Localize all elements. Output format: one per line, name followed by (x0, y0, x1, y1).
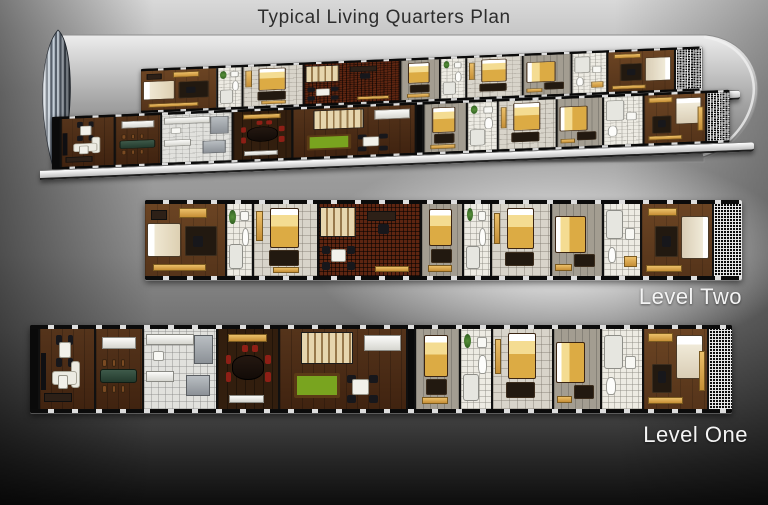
furniture-cab (624, 256, 637, 268)
furniture-sink (484, 106, 493, 113)
room-end-cap (705, 92, 729, 141)
furniture-cntr (244, 150, 278, 156)
furniture-chr (241, 127, 246, 133)
furniture-tub (470, 129, 485, 146)
room-master-bedroom (642, 329, 707, 409)
furniture-rug (574, 385, 593, 399)
furniture-sink (454, 62, 462, 68)
furniture-rug (479, 83, 506, 92)
room-bedroom-2 (252, 204, 317, 276)
room-bathroom-1 (225, 204, 252, 276)
furniture-bedgl (555, 216, 586, 253)
furniture-tub (229, 244, 243, 268)
room-master-bedroom (643, 93, 706, 144)
furniture-chr (241, 138, 246, 144)
room-lounge (38, 329, 94, 409)
furniture-cab (611, 85, 645, 90)
furniture-chr (226, 355, 231, 365)
furniture-chd (347, 246, 355, 255)
furniture-pool (294, 373, 341, 398)
furniture-cab (500, 107, 506, 128)
furniture-cab (699, 351, 705, 391)
room-bedroom-3 (420, 204, 462, 276)
furniture-tub (466, 246, 480, 269)
furniture-desk (44, 393, 72, 402)
room-bathroom-1 (466, 102, 497, 151)
room-bathroom-2 (439, 58, 465, 99)
furniture-cntr (164, 139, 190, 147)
furniture-rug (431, 249, 452, 263)
furniture-chd (378, 224, 389, 234)
furniture-rug (434, 133, 455, 143)
furniture-chd (369, 395, 378, 403)
furniture-bedgl (526, 61, 555, 83)
furniture-chd (360, 73, 370, 79)
furniture-appl (211, 116, 229, 134)
furniture-appl (194, 335, 213, 364)
furniture-cab (560, 139, 575, 144)
furniture-sink (477, 337, 487, 348)
furniture-cab (273, 267, 299, 273)
furniture-rug (511, 131, 539, 142)
furniture-plant (220, 71, 226, 79)
furniture-sink (240, 211, 249, 221)
furniture-chbr (140, 134, 144, 139)
furniture-bedwl (147, 223, 181, 258)
furniture-cab (430, 144, 455, 149)
furniture-toil (608, 247, 617, 263)
room-bedroom-1 (141, 68, 216, 111)
furniture-sink (592, 66, 601, 73)
furniture-toil (576, 77, 584, 86)
furniture-chr (257, 121, 263, 126)
room-bedroom-3 (556, 97, 602, 147)
room-corridor-stairs (317, 204, 420, 276)
furniture-rug (544, 82, 564, 90)
room-master-bedroom (606, 50, 674, 92)
furniture-rug (574, 254, 595, 267)
furniture-chd (307, 87, 315, 92)
room-dining-bar (114, 115, 160, 165)
furniture-plant (464, 334, 471, 348)
furniture-bedgl (556, 342, 585, 384)
furniture-chd (331, 95, 339, 100)
room-bedroom-5 (550, 204, 602, 276)
room-end-cap (674, 49, 702, 90)
furniture-cab (422, 397, 448, 404)
furniture-chd (380, 134, 389, 139)
furniture-chd (347, 262, 355, 271)
furniture-chr (266, 120, 272, 125)
furniture-desk (151, 210, 167, 220)
floorplan-one (30, 325, 732, 413)
furniture-chd (658, 120, 666, 128)
furniture-dtbl (100, 369, 138, 383)
furniture-cab (494, 213, 500, 245)
room-bedroom-1 (145, 204, 225, 276)
furniture-chd (307, 96, 315, 101)
room-end-cap (707, 329, 732, 409)
furniture-cntr (121, 120, 154, 129)
furniture-cab (646, 265, 682, 271)
furniture-tub (606, 100, 624, 121)
furniture-toil (485, 117, 493, 129)
furniture-chr (265, 372, 270, 382)
furniture-cab (245, 71, 252, 88)
furniture-rug (426, 379, 448, 395)
room-bedroom-2 (491, 329, 552, 409)
room-bathroom-3 (571, 53, 607, 94)
furniture-tub (606, 210, 623, 239)
furniture-chd (193, 236, 203, 248)
furniture-chd (322, 262, 330, 271)
furniture-bedgt (408, 62, 430, 83)
room-mid-wall (406, 329, 414, 409)
room-formal-dining (216, 329, 278, 409)
room-edge-wall (52, 119, 60, 167)
furniture-chd (56, 358, 61, 368)
furniture-dtblo (232, 355, 263, 381)
furniture-cab (179, 208, 208, 217)
furniture-chbr (131, 134, 135, 139)
furniture-chr (226, 372, 231, 382)
furniture-plant (443, 61, 449, 68)
furniture-sink (478, 211, 487, 221)
furniture-chr (265, 355, 270, 365)
furniture-sink (153, 351, 165, 361)
furniture-cab (648, 97, 672, 103)
furniture-toil (479, 228, 487, 245)
furniture-tblw (352, 379, 370, 395)
furniture-cab (375, 266, 409, 272)
furniture-tblw (331, 249, 346, 262)
furniture-cab (173, 71, 200, 77)
living-quarters-plan-page: { "title": "Typical Living Quarters Plan… (0, 0, 768, 505)
furniture-tv (63, 133, 68, 155)
furniture-tblw (59, 342, 71, 358)
furniture-desk (367, 211, 395, 220)
furniture-stair (306, 65, 340, 83)
furniture-sink (230, 71, 238, 77)
furniture-cntr (229, 395, 264, 403)
room-bedroom-1 (423, 103, 466, 153)
furniture-cab (613, 53, 641, 59)
furniture-rug (505, 252, 534, 266)
furniture-bedgt (259, 67, 286, 90)
furniture-rug (258, 91, 286, 101)
furniture-chbr (131, 150, 135, 155)
furniture-cab (228, 334, 268, 342)
furniture-chd (358, 146, 367, 151)
furniture-chbr (140, 149, 144, 154)
furniture-chbr (122, 135, 126, 140)
furniture-cab (698, 107, 703, 131)
furniture-chd (186, 86, 195, 93)
furniture-tub (574, 56, 590, 72)
furniture-cab (256, 211, 263, 241)
room-corridor-stairs (303, 61, 400, 104)
room-bedroom-2 (497, 99, 556, 149)
furniture-sink (626, 112, 637, 120)
room-bathroom-2 (602, 96, 643, 146)
furniture-cab (407, 93, 430, 97)
furniture-toil (455, 72, 462, 82)
furniture-chd (322, 246, 330, 255)
furniture-plant (467, 208, 473, 221)
outer-wall-windows-top (145, 200, 742, 204)
furniture-bedgt (270, 208, 299, 248)
level-one-strip (30, 325, 732, 413)
furniture-cab (648, 397, 683, 404)
furniture-bedgt (429, 209, 452, 246)
furniture-cab (261, 100, 286, 104)
furniture-cntr (164, 116, 210, 125)
floorplan-two (145, 200, 742, 280)
room-mid-wall (415, 105, 423, 153)
furniture-toil (232, 81, 239, 91)
furniture-cab (648, 333, 673, 342)
room-bathroom-2 (600, 329, 642, 409)
furniture-tub (463, 374, 479, 401)
furniture-appl (202, 140, 226, 153)
room-bedroom-4 (490, 204, 550, 276)
outer-wall-windows-bottom (30, 409, 732, 413)
furniture-bedgt (424, 335, 448, 377)
furniture-cab (153, 264, 206, 270)
room-bedroom-4 (465, 56, 521, 98)
furniture-cab (555, 264, 572, 270)
furniture-rug (506, 382, 536, 398)
furniture-cntr (102, 337, 136, 349)
furniture-rug (410, 84, 430, 93)
furniture-bedgt (432, 107, 455, 133)
furniture-tv (41, 353, 46, 390)
furniture-chbr (122, 150, 126, 155)
room-recreation (278, 329, 406, 409)
room-dining-bar (94, 329, 142, 409)
furniture-stair (314, 109, 364, 130)
furniture-cab (648, 135, 682, 141)
furniture-dtblo (247, 126, 277, 143)
furniture-chbr (121, 385, 125, 393)
furniture-cab (591, 81, 603, 88)
furniture-stair (320, 207, 356, 237)
furniture-chd (369, 375, 378, 383)
furniture-sink (625, 356, 636, 369)
furniture-sink (170, 128, 181, 134)
furniture-cab (243, 113, 281, 119)
furniture-cab (357, 95, 389, 100)
room-bedroom-2 (242, 65, 303, 107)
furniture-bedgt (481, 58, 507, 82)
level-two-label: Level Two (639, 284, 742, 310)
furniture-tblw (58, 375, 68, 389)
room-kitchen (160, 112, 231, 163)
level-two-strip (145, 200, 742, 280)
furniture-cab (648, 208, 677, 217)
room-formal-dining (231, 110, 291, 160)
furniture-chbr (102, 385, 106, 393)
furniture-tblw (80, 125, 91, 135)
furniture-toil (478, 355, 486, 374)
furniture-chd (658, 371, 666, 384)
furniture-bedgt (508, 333, 536, 379)
furniture-chd (347, 395, 356, 403)
furniture-cab (149, 102, 199, 108)
room-master-bedroom (640, 204, 712, 276)
furniture-tub (604, 335, 622, 369)
furniture-chr (279, 125, 284, 131)
furniture-tub (443, 82, 456, 95)
furniture-rug (269, 250, 299, 266)
room-bathroom-2 (462, 204, 490, 276)
furniture-rug (577, 131, 596, 140)
furniture-chbr (112, 385, 116, 393)
furniture-cab (495, 339, 501, 374)
furniture-chd (77, 135, 82, 141)
furniture-cntr (375, 109, 410, 120)
furniture-chd (627, 69, 636, 76)
furniture-bedwl (143, 80, 175, 100)
furniture-cntr (146, 371, 173, 382)
outer-wall-windows-bottom (145, 276, 742, 280)
furniture-appl (186, 375, 210, 396)
furniture-tub (220, 90, 233, 104)
furniture-chr (252, 345, 258, 352)
furniture-toil (606, 377, 616, 395)
room-bathroom-3 (602, 204, 640, 276)
room-bedroom-3 (552, 329, 600, 409)
furniture-bedwr (645, 56, 671, 81)
room-edge-wall (30, 329, 38, 409)
furniture-toil (242, 228, 250, 245)
furniture-chbr (102, 359, 106, 367)
furniture-bedgt (507, 208, 535, 250)
furniture-stair (301, 332, 353, 364)
furniture-cntr (364, 335, 401, 351)
furniture-desk (147, 74, 162, 80)
furniture-cab (526, 88, 542, 92)
room-end-cap (712, 204, 742, 276)
room-bathroom-1 (459, 329, 491, 409)
furniture-bedgl (560, 106, 588, 132)
level-one-label: Level One (643, 422, 748, 448)
room-recreation (291, 105, 415, 158)
furniture-desk (350, 66, 377, 72)
room-bathroom-1 (216, 67, 241, 108)
room-bedroom-5 (522, 54, 571, 96)
furniture-cab (557, 396, 573, 403)
furniture-bedgt (513, 102, 540, 131)
furniture-plant (229, 210, 236, 224)
furniture-tblw (316, 88, 330, 96)
furniture-chr (242, 345, 248, 352)
furniture-chbr (112, 359, 116, 367)
furniture-cntr (146, 334, 194, 345)
furniture-desk (66, 156, 93, 162)
furniture-chbr (121, 359, 125, 367)
furniture-chd (662, 236, 671, 248)
furniture-toil (608, 126, 617, 137)
furniture-tblw (363, 136, 380, 146)
furniture-sink (625, 228, 635, 240)
outer-wall-windows-top (30, 325, 732, 329)
room-kitchen (142, 329, 216, 409)
furniture-chd (331, 86, 339, 91)
furniture-cab (428, 265, 453, 271)
room-lounge (60, 117, 114, 167)
furniture-chd (380, 145, 389, 150)
furniture-plant (471, 105, 478, 114)
furniture-chr (279, 136, 284, 142)
furniture-bedwr (681, 216, 709, 259)
furniture-cab (469, 63, 475, 81)
furniture-dtbl (119, 139, 155, 149)
furniture-pool (307, 134, 352, 151)
room-bedroom-1 (414, 329, 459, 409)
furniture-tblw (79, 146, 88, 155)
room-bedroom-3 (400, 59, 439, 100)
page-title: Typical Living Quarters Plan (0, 7, 768, 29)
